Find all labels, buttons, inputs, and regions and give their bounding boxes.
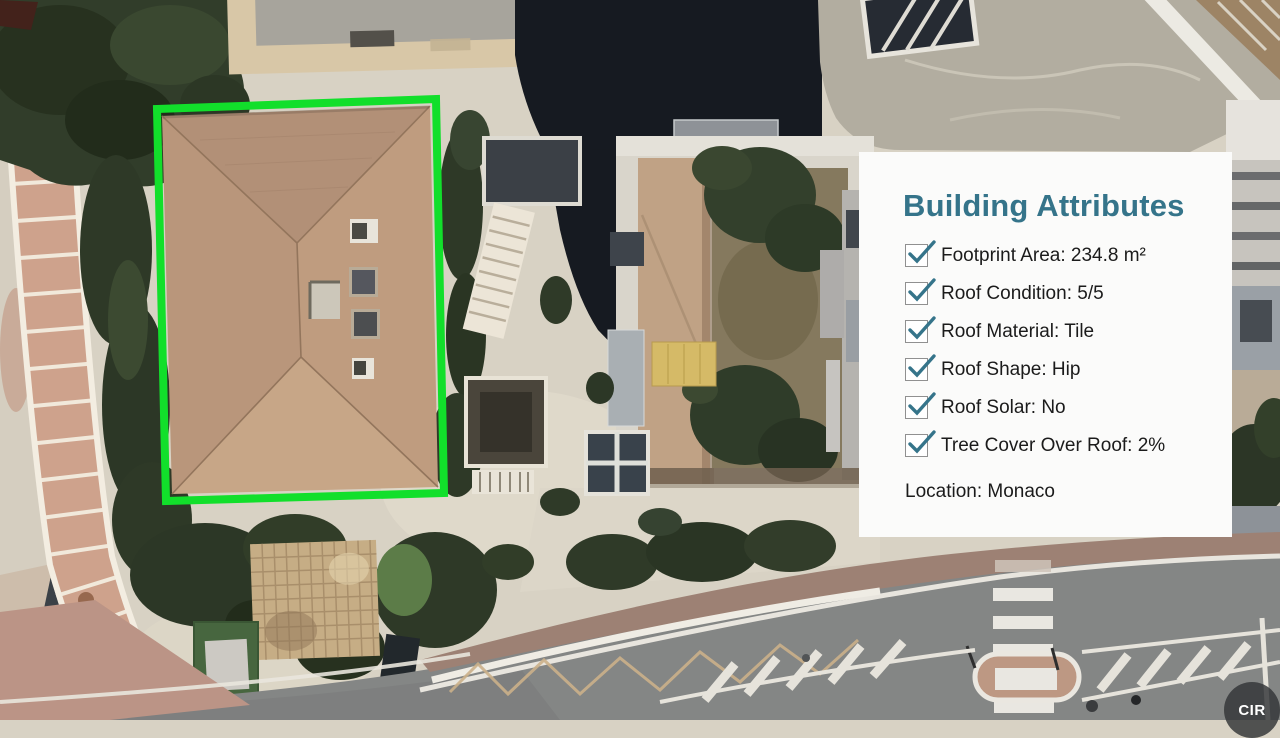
building-middle bbox=[616, 136, 874, 516]
attribute-label: Roof Condition: 5/5 bbox=[941, 283, 1104, 305]
attribute-row-tree-cover: Tree Cover Over Roof: 2% bbox=[903, 433, 1212, 459]
building-top-right bbox=[818, 0, 1280, 152]
checkbox-checked[interactable] bbox=[905, 244, 928, 267]
cir-layer-button[interactable]: CIR bbox=[1224, 682, 1280, 738]
attribute-label: Roof Shape: Hip bbox=[941, 359, 1080, 381]
attribute-label: Tree Cover Over Roof: 2% bbox=[941, 435, 1165, 457]
panel-title: Building Attributes bbox=[903, 190, 1212, 223]
attribute-list: Footprint Area: 234.8 m² Roof Condition:… bbox=[903, 243, 1212, 459]
checkbox-checked[interactable] bbox=[905, 320, 928, 343]
attribute-row-roof-solar: Roof Solar: No bbox=[903, 395, 1212, 421]
checkbox-checked[interactable] bbox=[905, 434, 928, 457]
attribute-row-roof-shape: Roof Shape: Hip bbox=[903, 357, 1212, 383]
cir-layer-label: CIR bbox=[1238, 702, 1265, 719]
attribute-row-roof-material: Roof Material: Tile bbox=[903, 319, 1212, 345]
attribute-row-roof-condition: Roof Condition: 5/5 bbox=[903, 281, 1212, 307]
selected-building-roof bbox=[162, 106, 438, 494]
attribute-row-footprint-area: Footprint Area: 234.8 m² bbox=[903, 243, 1212, 269]
checkbox-checked[interactable] bbox=[905, 358, 928, 381]
building-attributes-panel: Building Attributes Footprint Area: 234.… bbox=[859, 152, 1232, 537]
location-label: Location: Monaco bbox=[905, 481, 1212, 503]
attribute-label: Roof Solar: No bbox=[941, 397, 1066, 419]
checkbox-checked[interactable] bbox=[905, 282, 928, 305]
attribute-label: Roof Material: Tile bbox=[941, 321, 1094, 343]
checkbox-checked[interactable] bbox=[905, 396, 928, 419]
attribute-label: Footprint Area: 234.8 m² bbox=[941, 245, 1146, 267]
